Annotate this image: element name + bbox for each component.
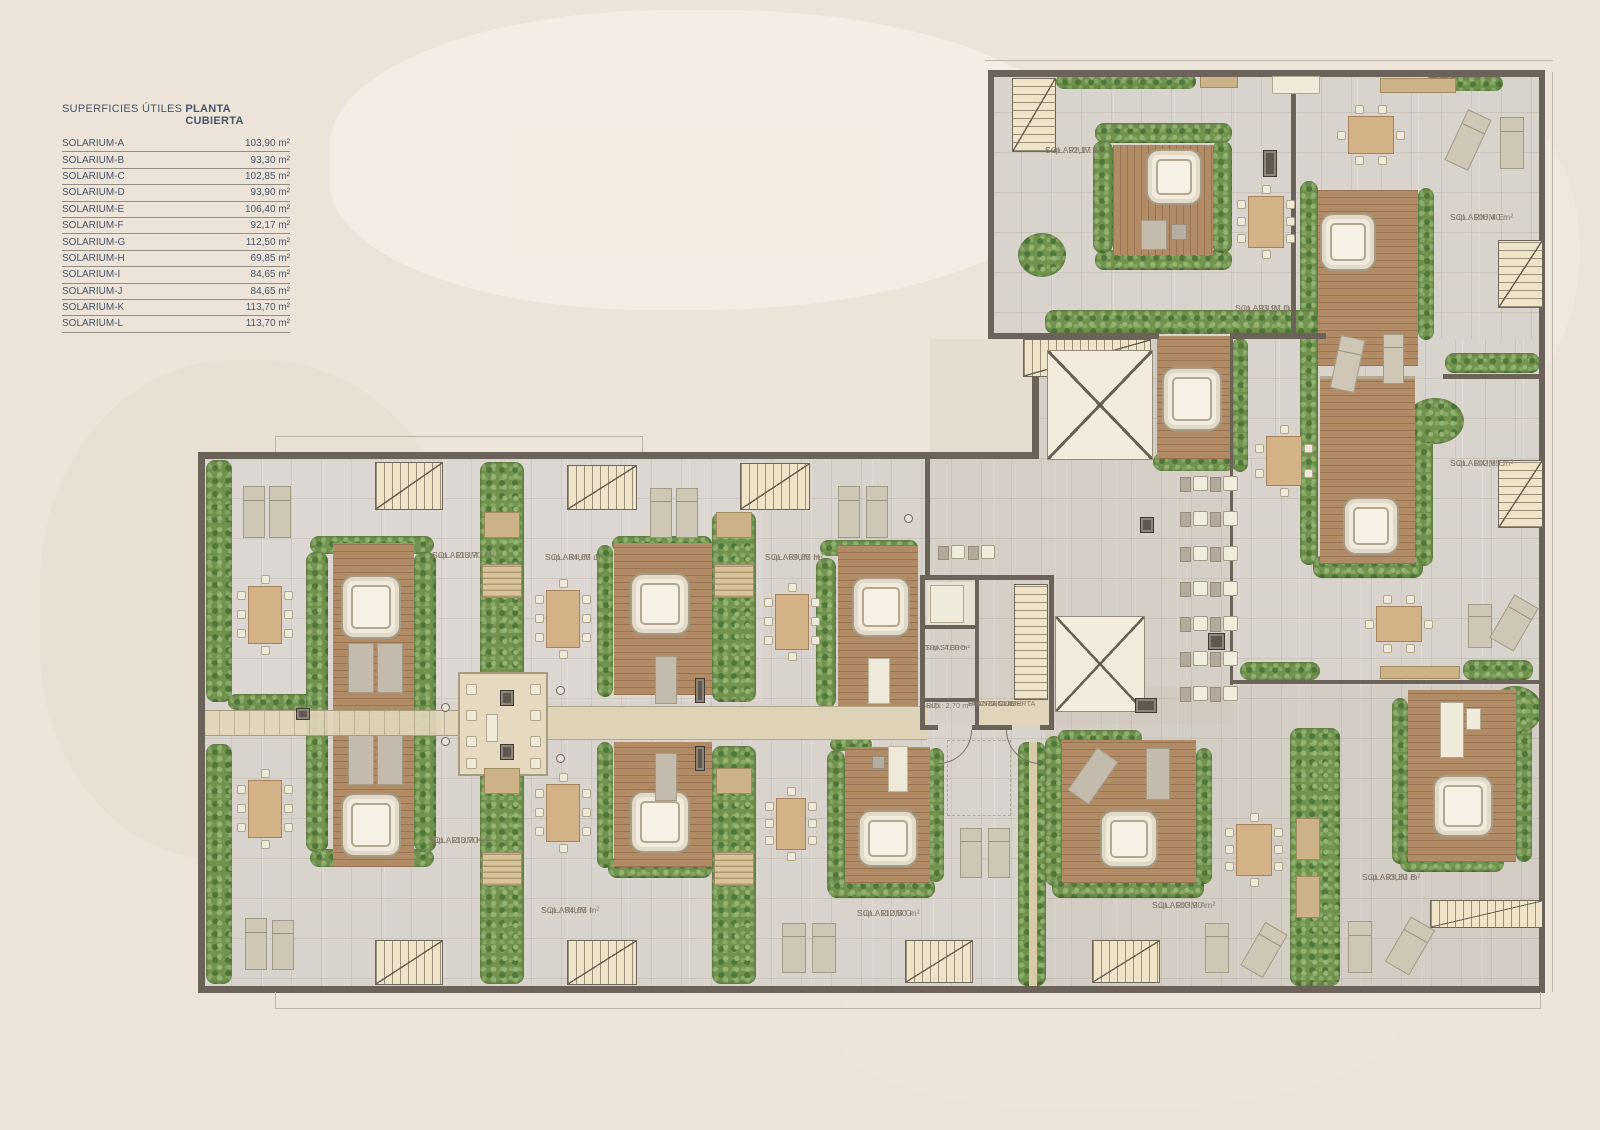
- legend-row: SOLARIUM-G112,50 m²: [62, 234, 290, 250]
- louvered-planter: [714, 852, 754, 886]
- dining-table: [776, 798, 806, 850]
- hot-tub: [858, 810, 918, 867]
- stairs-icon: [1430, 900, 1543, 928]
- deck-mat: [1146, 748, 1170, 800]
- property-line: [1552, 72, 1553, 992]
- rooftop-panel: [1193, 651, 1208, 666]
- legend-row-value: 69,85 m²: [251, 253, 290, 264]
- stairs-icon: [1092, 940, 1160, 983]
- chair: [1365, 620, 1374, 629]
- sun-lounger: [650, 488, 672, 538]
- sun-lounger: [243, 486, 265, 538]
- hot-tub: [341, 793, 401, 857]
- chair: [284, 785, 293, 794]
- stair-diagonal: [1431, 901, 1542, 927]
- room-label-line: Sup.: 4,30 m²: [925, 643, 970, 652]
- property-line: [275, 436, 643, 437]
- chair: [237, 785, 246, 794]
- chair: [535, 595, 544, 604]
- chair: [811, 617, 820, 626]
- sun-lounger: [245, 918, 267, 970]
- roof-plan-drawing: SUPERFICIES ÚTILES PLANTA CUBIERTA SOLAR…: [0, 0, 1600, 1130]
- legend-row-name: SOLARIUM-K: [62, 302, 124, 313]
- deck-mat: [377, 643, 403, 693]
- sun-lounger: [269, 486, 291, 538]
- chair: [1274, 845, 1283, 854]
- sun-lounger: [1500, 117, 1524, 169]
- louvered-planter: [482, 852, 522, 886]
- legend-row-value: 113,70 m²: [246, 318, 290, 329]
- property-line: [642, 436, 643, 452]
- hot-tub: [1320, 213, 1376, 271]
- rooftop-panel: [1193, 581, 1208, 596]
- hedge: [928, 748, 944, 882]
- chair: [261, 646, 270, 655]
- pergola-chair: [530, 736, 541, 747]
- deck-mat: [655, 753, 677, 801]
- chair: [1406, 595, 1415, 604]
- unit-area: Sup.: 93,90 m²: [1235, 303, 1294, 314]
- louvered-planter: [714, 564, 754, 598]
- chair: [1383, 644, 1392, 653]
- sun-lounger: [1383, 334, 1404, 384]
- chair: [788, 652, 797, 661]
- chair: [535, 614, 544, 623]
- chair: [237, 610, 246, 619]
- wall: [1539, 70, 1545, 992]
- chair: [582, 827, 591, 836]
- chair: [582, 614, 591, 623]
- lamp-post: [441, 737, 450, 746]
- chair: [1280, 488, 1289, 497]
- sun-lounger: [1348, 921, 1372, 973]
- legend-row: SOLARIUM-L113,70 m²: [62, 316, 290, 332]
- chair: [1250, 813, 1259, 822]
- sun-lounger: [960, 828, 982, 878]
- legend-row-name: SOLARIUM-L: [62, 318, 123, 329]
- chair: [284, 804, 293, 813]
- wall: [920, 725, 938, 730]
- louvered-planter: [482, 564, 522, 598]
- hedge: [414, 552, 436, 852]
- legend-row: SOLARIUM-D93,90 m²: [62, 185, 290, 201]
- hedge: [1240, 662, 1320, 680]
- chair: [237, 591, 246, 600]
- unit-area: Sup.: 112,50 m²: [857, 908, 920, 919]
- stair-diagonal: [741, 464, 809, 509]
- unit-area: Sup.: 93,30 m²: [1362, 872, 1421, 883]
- equipment-box: [1135, 698, 1157, 713]
- deck-mat: [1141, 220, 1167, 250]
- sun-lounger: [676, 488, 698, 538]
- chair: [1337, 131, 1346, 140]
- legend-row: SOLARIUM-K113,70 m²: [62, 300, 290, 316]
- chair: [811, 636, 820, 645]
- outdoor-furniture: [1466, 708, 1481, 730]
- chair: [1304, 444, 1313, 453]
- outdoor-furniture: [1272, 76, 1320, 94]
- chair: [1280, 425, 1289, 434]
- chair: [1225, 862, 1234, 871]
- panel-pad: [1210, 547, 1221, 562]
- wall: [922, 625, 979, 629]
- unit-area: Sup.: 84,65 m²: [541, 905, 600, 916]
- outdoor-furniture: [1440, 702, 1464, 758]
- lamp-post: [556, 686, 565, 695]
- planter-box: [716, 512, 752, 538]
- guide-lines: [947, 740, 1011, 816]
- hedge: [1095, 123, 1232, 143]
- sun-lounger: [782, 923, 806, 973]
- legend-row-name: SOLARIUM-C: [62, 171, 125, 182]
- legend-row: SOLARIUM-F92,17 m²: [62, 218, 290, 234]
- planter-box: [716, 768, 752, 794]
- stairs-icon: [740, 463, 810, 510]
- stair-diagonal: [1093, 941, 1159, 982]
- legend-row-value: 93,30 m²: [251, 155, 290, 166]
- dining-table: [1248, 196, 1284, 248]
- dining-table: [546, 590, 580, 648]
- wall: [1040, 725, 1054, 730]
- chair: [808, 836, 817, 845]
- chair: [1286, 217, 1295, 226]
- legend-row-name: SOLARIUM-E: [62, 204, 124, 215]
- hedge: [816, 558, 836, 708]
- chair: [811, 598, 820, 607]
- legend-row-name: SOLARIUM-J: [62, 286, 123, 297]
- chair: [535, 827, 544, 836]
- rooftop-panel: [1223, 651, 1238, 666]
- hedge: [827, 750, 845, 896]
- dining-table: [775, 594, 809, 650]
- unit-area: Sup.: 113,70 m²: [428, 835, 491, 846]
- rooftop-panel: [981, 545, 995, 559]
- dining-table: [1266, 436, 1302, 486]
- wall: [1443, 374, 1541, 379]
- legend-header: SUPERFICIES ÚTILES PLANTA CUBIERTA: [62, 103, 290, 127]
- side-table: [1171, 224, 1187, 240]
- hedge: [1196, 748, 1212, 884]
- property-line: [985, 60, 1553, 61]
- chair: [1255, 469, 1264, 478]
- legend-rows: SOLARIUM-A103,90 m²SOLARIUM-B93,30 m²SOL…: [62, 136, 290, 333]
- chair: [1383, 595, 1392, 604]
- panel-pad: [1210, 582, 1221, 597]
- hot-tub: [1162, 367, 1222, 431]
- dining-table: [248, 586, 282, 644]
- hedge: [597, 742, 613, 868]
- wall: [925, 459, 930, 580]
- legend-row-value: 103,90 m²: [245, 138, 290, 149]
- legend-row-name: SOLARIUM-B: [62, 155, 124, 166]
- deck-mat: [348, 735, 374, 785]
- hedge: [306, 552, 328, 852]
- storage-shelf: [930, 585, 964, 623]
- chair: [764, 617, 773, 626]
- equipment-box: [695, 678, 705, 703]
- chair: [1274, 828, 1283, 837]
- chair: [1274, 862, 1283, 871]
- chair: [284, 629, 293, 638]
- legend-row-value: 102,85 m²: [245, 171, 290, 182]
- hedge: [1232, 338, 1248, 472]
- equipment-box: [695, 746, 705, 771]
- hedge: [1093, 141, 1113, 253]
- rooftop-panel: [1223, 686, 1238, 701]
- stairs-icon: [1014, 584, 1048, 700]
- pergola-chair: [466, 736, 477, 747]
- panel-pad: [1180, 687, 1191, 702]
- panel-pad: [1210, 652, 1221, 667]
- rooftop-panel: [1193, 616, 1208, 631]
- hedge: [206, 744, 232, 984]
- sun-lounger: [866, 486, 888, 538]
- stair-treads: [1015, 585, 1047, 699]
- chair: [261, 840, 270, 849]
- rooftop-panel: [1193, 546, 1208, 561]
- wall: [920, 575, 925, 730]
- hot-tub: [341, 575, 401, 639]
- chair: [582, 808, 591, 817]
- chair: [808, 819, 817, 828]
- pergola-chair: [530, 684, 541, 695]
- chair: [1378, 105, 1387, 114]
- chair: [808, 802, 817, 811]
- hedge: [712, 512, 756, 702]
- wall: [920, 575, 1054, 580]
- wall: [198, 452, 1038, 459]
- sun-lounger: [1205, 923, 1229, 973]
- chair: [1262, 250, 1271, 259]
- hot-tub: [630, 573, 690, 635]
- deck-mat: [348, 643, 374, 693]
- dining-table: [546, 784, 580, 842]
- unit-area: Sup.: 103,90 m²: [1152, 900, 1215, 911]
- legend-row-name: SOLARIUM-A: [62, 138, 124, 149]
- stair-diagonal: [1499, 461, 1542, 527]
- stairs-icon: [567, 940, 637, 985]
- skylight-brace: [1056, 617, 1144, 711]
- side-table: [872, 756, 885, 769]
- dining-table: [1376, 606, 1422, 642]
- legend-row-value: 84,65 m²: [251, 269, 290, 280]
- hot-tub: [1146, 149, 1202, 205]
- rooftop-panel: [1193, 511, 1208, 526]
- legend-title: SUPERFICIES ÚTILES: [62, 103, 185, 127]
- chair: [1250, 878, 1259, 887]
- legend-row-value: 84,65 m²: [251, 286, 290, 297]
- chair: [1304, 469, 1313, 478]
- skylight: [1055, 616, 1145, 712]
- legend-row: SOLARIUM-C102,85 m²: [62, 169, 290, 185]
- wall: [198, 452, 205, 993]
- chair: [1355, 156, 1364, 165]
- rooftop-panel: [1223, 476, 1238, 491]
- chair: [261, 769, 270, 778]
- rooftop-panel: [1223, 511, 1238, 526]
- legend-row-value: 113,70 m²: [246, 302, 290, 313]
- hedge: [1392, 698, 1408, 864]
- chair: [284, 610, 293, 619]
- chair: [765, 802, 774, 811]
- pergola-chair: [466, 684, 477, 695]
- deck-mat: [377, 735, 403, 785]
- chair: [237, 629, 246, 638]
- hedge: [1445, 353, 1540, 373]
- fire-pit: [500, 690, 514, 706]
- chair: [765, 836, 774, 845]
- legend-row-name: SOLARIUM-F: [62, 220, 124, 231]
- bridge-walkway: [205, 710, 461, 736]
- legend-row: SOLARIUM-A103,90 m²: [62, 136, 290, 152]
- property-line: [1540, 992, 1541, 1009]
- chair: [237, 823, 246, 832]
- wall: [988, 70, 1545, 77]
- legend-row-value: 112,50 m²: [246, 237, 290, 248]
- sun-lounger: [988, 828, 1010, 878]
- legend-row-name: SOLARIUM-I: [62, 269, 120, 280]
- panel-pad: [1180, 582, 1191, 597]
- chair: [1237, 234, 1246, 243]
- chair: [582, 595, 591, 604]
- unit-area: Sup.: 69,85 m²: [765, 552, 824, 563]
- hedge: [1463, 660, 1533, 680]
- hot-tub: [1100, 810, 1158, 868]
- chair: [582, 633, 591, 642]
- chair: [1286, 200, 1295, 209]
- stairs-icon: [1498, 240, 1543, 308]
- stair-diagonal: [568, 466, 636, 509]
- rooftop-panel: [1223, 546, 1238, 561]
- rooftop-panel: [1193, 686, 1208, 701]
- unit-area: Sup.: 84,65 m²: [545, 552, 604, 563]
- pergola-chair: [466, 710, 477, 721]
- legend-row-value: 93,90 m²: [251, 187, 290, 198]
- chair: [535, 633, 544, 642]
- dining-table: [1348, 116, 1394, 154]
- property-line: [275, 992, 276, 1009]
- legend-row: SOLARIUM-J84,65 m²: [62, 284, 290, 300]
- stair-diagonal: [376, 463, 442, 509]
- panel-pad: [1180, 477, 1191, 492]
- chair: [535, 808, 544, 817]
- chair: [284, 823, 293, 832]
- stairs-icon: [1498, 460, 1543, 528]
- chair: [1378, 156, 1387, 165]
- legend-row-name: SOLARIUM-D: [62, 187, 125, 198]
- property-line: [275, 436, 276, 452]
- stairs-icon: [1012, 78, 1056, 152]
- hedge: [1418, 188, 1434, 340]
- dining-table: [248, 780, 282, 838]
- deck-mat: [888, 746, 908, 792]
- legend-table: SUPERFICIES ÚTILES PLANTA CUBIERTA SOLAR…: [62, 103, 290, 333]
- chair: [1225, 845, 1234, 854]
- property-line: [275, 1008, 1541, 1009]
- chair: [535, 789, 544, 798]
- chair: [765, 819, 774, 828]
- unit-area: Sup.: 106,40 m²: [1450, 212, 1513, 223]
- stairs-icon: [375, 462, 443, 510]
- legend-row-value: 92,17 m²: [251, 220, 290, 231]
- chair: [1355, 105, 1364, 114]
- chair: [788, 583, 797, 592]
- equipment-box: [1140, 517, 1154, 533]
- legend-row-name: SOLARIUM-H: [62, 253, 125, 264]
- planter-box: [484, 768, 520, 794]
- bush: [1018, 233, 1066, 277]
- skylight-brace: [1048, 351, 1152, 459]
- hot-tub: [852, 577, 910, 637]
- stair-diagonal: [376, 941, 442, 984]
- chair: [1406, 644, 1415, 653]
- legend-row: SOLARIUM-B93,30 m²: [62, 152, 290, 168]
- hedge: [597, 545, 613, 697]
- legend-row-name: SOLARIUM-G: [62, 237, 125, 248]
- hedge: [1045, 736, 1063, 886]
- hot-tub: [1433, 775, 1493, 837]
- chair: [764, 598, 773, 607]
- wall: [1230, 333, 1326, 339]
- chair: [559, 773, 568, 782]
- sun-lounger: [1468, 604, 1492, 648]
- equipment-box: [296, 708, 310, 720]
- pergola-chair: [530, 758, 541, 769]
- rooftop-panel: [951, 545, 965, 559]
- planter-box: [1380, 666, 1460, 679]
- chair: [1262, 185, 1271, 194]
- panel-pad: [1180, 652, 1191, 667]
- room-label-line: Sup.: 2,70 m²: [926, 701, 971, 710]
- chair: [559, 844, 568, 853]
- lamp-post: [556, 754, 565, 763]
- chair: [1424, 620, 1433, 629]
- rooftop-panel: [1193, 476, 1208, 491]
- panel-pad: [968, 546, 979, 560]
- chair: [237, 804, 246, 813]
- unit-area: Sup.: 113,70 m²: [432, 550, 495, 561]
- panel-pad: [1210, 477, 1221, 492]
- skylight: [1047, 350, 1153, 460]
- chair: [1396, 131, 1405, 140]
- dining-table: [1236, 824, 1272, 876]
- deck-mat: [655, 656, 677, 704]
- equipment-box: [1263, 150, 1277, 177]
- chair: [261, 575, 270, 584]
- hot-tub: [1343, 497, 1399, 555]
- sun-lounger: [838, 486, 860, 538]
- panel-pad: [1210, 617, 1221, 632]
- planter-box: [1380, 78, 1456, 93]
- fire-pit: [500, 744, 514, 760]
- chair: [284, 591, 293, 600]
- garden-path: [1029, 742, 1037, 986]
- rooftop-panel: [1223, 581, 1238, 596]
- hedge: [1300, 181, 1318, 565]
- planter-box: [1296, 818, 1320, 860]
- planter-box: [484, 512, 520, 538]
- panel-pad: [1180, 547, 1191, 562]
- wall: [988, 70, 994, 339]
- panel-pad: [1210, 512, 1221, 527]
- chair: [559, 579, 568, 588]
- stair-diagonal: [1013, 79, 1055, 151]
- hedge: [1212, 141, 1232, 253]
- panel-pad: [938, 546, 949, 560]
- sun-lounger: [272, 920, 294, 970]
- chair: [1237, 217, 1246, 226]
- chair: [787, 852, 796, 861]
